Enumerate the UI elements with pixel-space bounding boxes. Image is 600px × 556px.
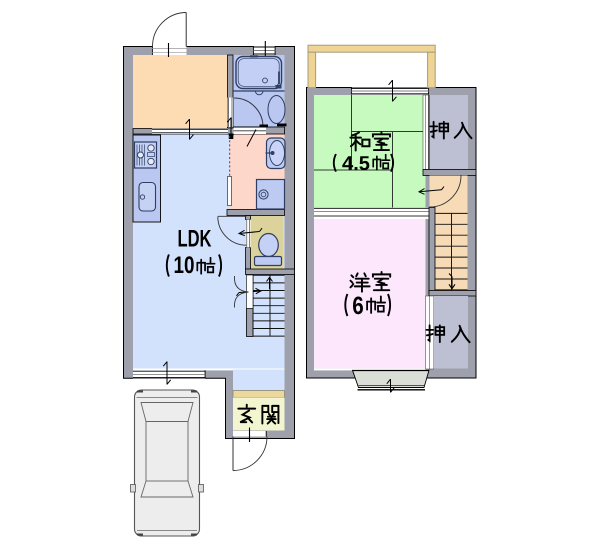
svg-text:6: 6 — [352, 292, 364, 320]
svg-text:10: 10 — [174, 252, 195, 279]
svg-text:LDK: LDK — [178, 226, 212, 253]
svg-text:4.5: 4.5 — [342, 153, 370, 175]
